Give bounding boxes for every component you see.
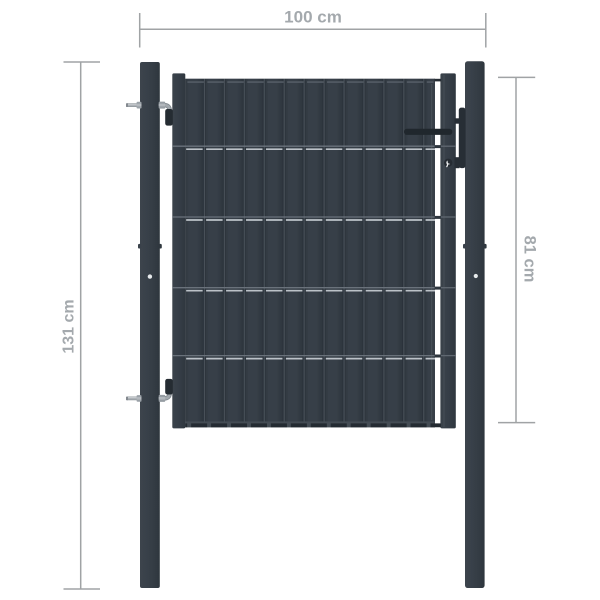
svg-text:81 cm: 81 cm <box>521 236 539 283</box>
svg-text:100 cm: 100 cm <box>284 7 342 26</box>
svg-text:131 cm: 131 cm <box>61 299 78 353</box>
